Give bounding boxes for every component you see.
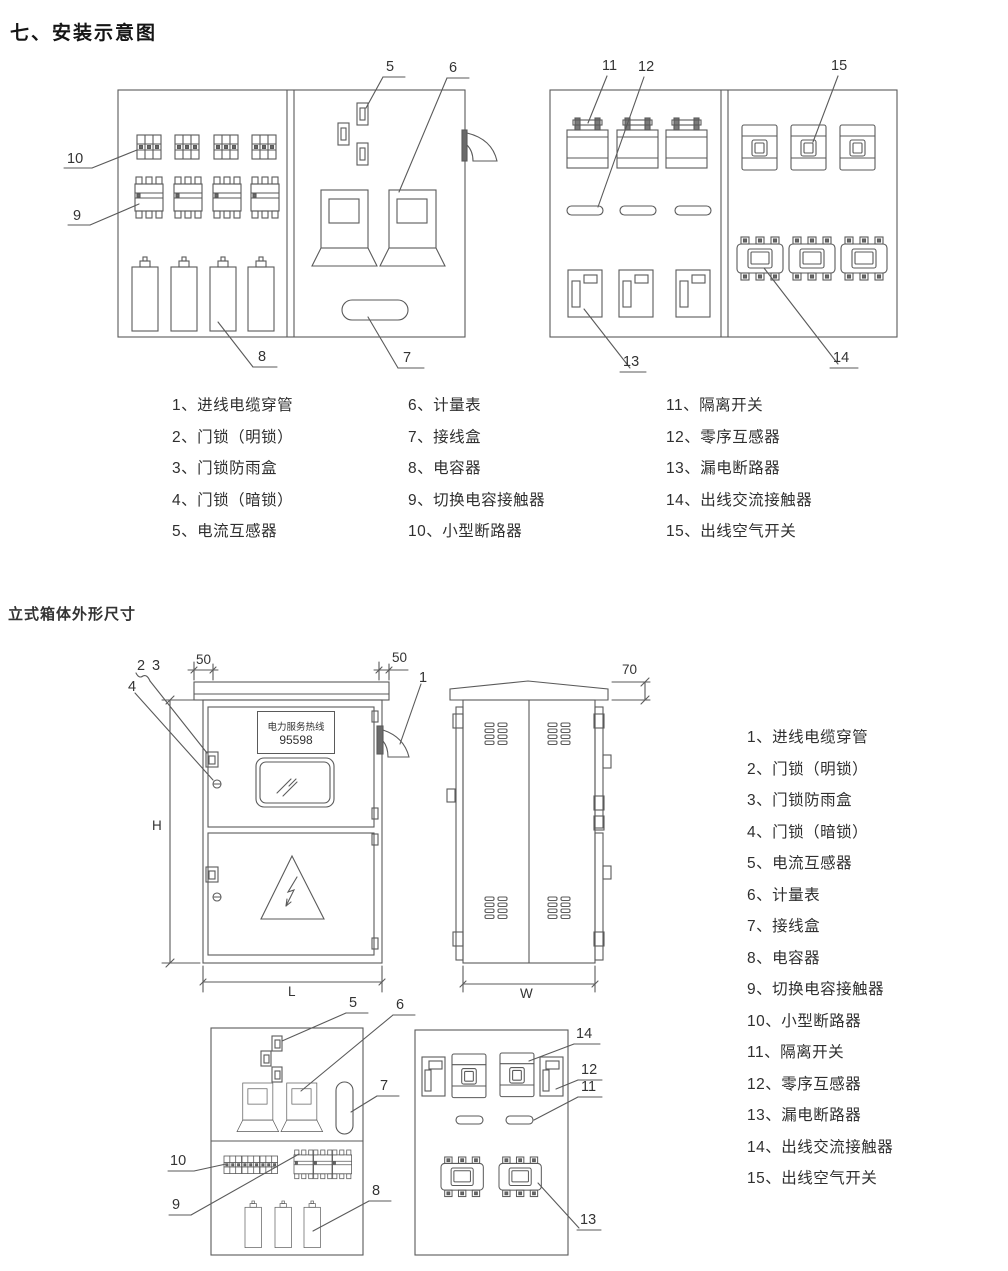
capacitor xyxy=(171,257,197,331)
callout-14: 14 xyxy=(833,350,849,366)
zero-sequence-ct xyxy=(456,1116,483,1124)
viewing-window xyxy=(256,758,334,807)
capacitor xyxy=(275,1201,291,1248)
air-switch xyxy=(742,125,777,170)
ac-contactor xyxy=(737,237,783,280)
cable-gland xyxy=(462,130,497,161)
legend-item: 5、电流互感器 xyxy=(172,516,293,548)
legend-item: 5、电流互感器 xyxy=(747,848,893,880)
legend-right-column: 1、进线电缆穿管 2、门锁（明锁） 3、门锁防雨盒 4、门锁（暗锁） 5、电流互… xyxy=(747,722,893,1195)
callout-5: 5 xyxy=(386,59,394,75)
dim-50-right: 50 xyxy=(392,650,407,665)
junction-box xyxy=(336,1082,353,1134)
callout-3: 3 xyxy=(152,658,160,674)
legend-item: 4、门锁（暗锁） xyxy=(172,485,293,517)
energy-meter xyxy=(237,1083,279,1132)
isolating-switch xyxy=(666,118,707,168)
panel-bottom-right xyxy=(415,1030,602,1255)
callout-8-bottom: 8 xyxy=(372,1183,380,1199)
mini-breaker xyxy=(137,135,161,159)
callout-10: 10 xyxy=(67,151,83,167)
legend-item: 7、接线盒 xyxy=(747,911,893,943)
hinge xyxy=(372,711,378,722)
dim-W: W xyxy=(520,986,533,1001)
legend-item: 3、门锁防雨盒 xyxy=(747,785,893,817)
page-title: 七、安装示意图 xyxy=(10,18,157,45)
panel-bottom-left xyxy=(168,1013,415,1255)
energy-meter xyxy=(312,190,377,266)
legend-item: 8、电容器 xyxy=(747,943,893,975)
legend-item: 12、零序互感器 xyxy=(747,1069,893,1101)
callout-7-bottom: 7 xyxy=(380,1078,388,1094)
current-transformer xyxy=(357,143,368,165)
leakage-breaker xyxy=(422,1057,445,1096)
legend-item: 13、漏电断路器 xyxy=(666,453,812,485)
leakage-breaker xyxy=(540,1057,563,1096)
callout-6: 6 xyxy=(449,60,457,76)
capacitor xyxy=(132,257,158,331)
hinge xyxy=(372,834,378,845)
capacitor xyxy=(210,257,236,331)
mini-breaker xyxy=(252,135,276,159)
switch-capacitor-contactor xyxy=(135,177,163,218)
legend-item: 7、接线盒 xyxy=(408,422,545,454)
current-transformer-small xyxy=(261,1036,282,1082)
air-switch xyxy=(500,1053,534,1097)
callout-14-bottom: 14 xyxy=(576,1026,592,1042)
callout-12-bottom: 12 xyxy=(581,1062,597,1078)
cabinet-side-view xyxy=(447,678,650,992)
legend-item: 6、计量表 xyxy=(747,880,893,912)
legend-item: 9、切换电容接触器 xyxy=(408,485,545,517)
legend-item: 11、隔离开关 xyxy=(747,1037,893,1069)
callout-9: 9 xyxy=(73,208,81,224)
ac-contactor xyxy=(789,237,835,280)
capacitor xyxy=(304,1201,320,1248)
document-page: 七、安装示意图 立式箱体外形尺寸 1、进线电缆穿管 2、门锁（明锁） 3、门锁防… xyxy=(0,0,1008,1271)
legend-item: 2、门锁（明锁） xyxy=(172,422,293,454)
junction-box xyxy=(342,300,408,320)
legend-top-column-1: 1、进线电缆穿管 2、门锁（明锁） 3、门锁防雨盒 4、门锁（暗锁） 5、电流互… xyxy=(172,390,293,548)
ac-contactor xyxy=(499,1157,541,1197)
vent-louvers xyxy=(548,897,570,919)
isolating-switch xyxy=(567,118,608,168)
mini-breaker xyxy=(175,135,199,159)
legend-item: 15、出线空气开关 xyxy=(747,1163,893,1195)
section2-title: 立式箱体外形尺寸 xyxy=(8,603,136,624)
legend-item: 1、进线电缆穿管 xyxy=(172,390,293,422)
callout-13: 13 xyxy=(623,354,639,370)
dim-H: H xyxy=(152,818,162,833)
mini-breaker xyxy=(242,1156,260,1174)
switch-capacitor-contactor xyxy=(294,1150,314,1179)
leakage-breaker xyxy=(676,270,710,317)
dim-L: L xyxy=(288,984,296,999)
zero-sequence-ct xyxy=(620,206,656,215)
callout-9-bottom: 9 xyxy=(172,1197,180,1213)
legend-item: 13、漏电断路器 xyxy=(747,1100,893,1132)
callout-11-bottom: 11 xyxy=(581,1079,596,1095)
mini-breaker xyxy=(214,135,238,159)
callout-15: 15 xyxy=(831,58,847,74)
vent-louvers xyxy=(485,723,507,745)
callout-5-bottom: 5 xyxy=(349,995,357,1011)
callout-1: 1 xyxy=(419,670,427,686)
capacitor xyxy=(245,1201,261,1248)
callout-13-bottom: 13 xyxy=(580,1212,596,1228)
callout-11: 11 xyxy=(602,58,617,74)
air-switch xyxy=(791,125,826,170)
legend-item: 8、电容器 xyxy=(408,453,545,485)
switch-capacitor-contactor xyxy=(174,177,202,218)
legend-item: 14、出线交流接触器 xyxy=(666,485,812,517)
switch-capacitor-contactor xyxy=(313,1150,333,1179)
isolating-switch xyxy=(617,118,658,168)
cabinet-top-right xyxy=(550,76,897,372)
dim-70: 70 xyxy=(622,662,637,677)
hinge xyxy=(372,938,378,949)
switch-capacitor-contactor xyxy=(332,1150,352,1179)
legend-top-column-2: 6、计量表 7、接线盒 8、电容器 9、切换电容接触器 10、小型断路器 xyxy=(408,390,545,548)
air-switch xyxy=(452,1054,486,1098)
leakage-breaker xyxy=(619,270,653,317)
callout-4: 4 xyxy=(128,679,136,695)
warning-triangle xyxy=(261,856,324,919)
ac-contactor xyxy=(841,237,887,280)
mini-breaker xyxy=(224,1156,242,1174)
legend-item: 11、隔离开关 xyxy=(666,390,812,422)
legend-item: 6、计量表 xyxy=(408,390,545,422)
air-switch xyxy=(840,125,875,170)
capacitor xyxy=(248,257,274,331)
cabinet-top-left xyxy=(64,77,497,368)
current-transformer xyxy=(338,123,349,145)
legend-item: 3、门锁防雨盒 xyxy=(172,453,293,485)
energy-meter xyxy=(380,190,445,266)
hinge xyxy=(372,808,378,819)
legend-item: 9、切换电容接触器 xyxy=(747,974,893,1006)
legend-item: 4、门锁（暗锁） xyxy=(747,817,893,849)
callout-6-bottom: 6 xyxy=(396,997,404,1013)
legend-item: 2、门锁（明锁） xyxy=(747,754,893,786)
dimension-70 xyxy=(612,678,650,704)
callout-12: 12 xyxy=(638,59,654,75)
callout-10-bottom: 10 xyxy=(170,1153,186,1169)
zero-sequence-ct xyxy=(506,1116,533,1124)
service-hotline-plate: 电力服务热线 95598 xyxy=(257,711,335,754)
legend-item: 1、进线电缆穿管 xyxy=(747,722,893,754)
vent-louvers xyxy=(548,723,570,745)
hotline-number: 95598 xyxy=(279,733,312,747)
zero-sequence-ct xyxy=(675,206,711,215)
vent-louvers xyxy=(485,897,507,919)
callout-2: 2 xyxy=(137,658,145,674)
callout-7: 7 xyxy=(403,350,411,366)
switch-capacitor-contactor xyxy=(251,177,279,218)
legend-item: 15、出线空气开关 xyxy=(666,516,812,548)
ac-contactor xyxy=(441,1157,483,1197)
lower-door xyxy=(208,833,374,955)
dim-50-left: 50 xyxy=(196,652,211,667)
callout-8: 8 xyxy=(258,349,266,365)
hotline-label: 电力服务热线 xyxy=(267,719,324,733)
switch-capacitor-contactor xyxy=(213,177,241,218)
legend-item: 10、小型断路器 xyxy=(408,516,545,548)
legend-item: 10、小型断路器 xyxy=(747,1006,893,1038)
legend-item: 12、零序互感器 xyxy=(666,422,812,454)
legend-top-column-3: 11、隔离开关 12、零序互感器 13、漏电断路器 14、出线交流接触器 15、… xyxy=(666,390,812,548)
legend-item: 14、出线交流接触器 xyxy=(747,1132,893,1164)
